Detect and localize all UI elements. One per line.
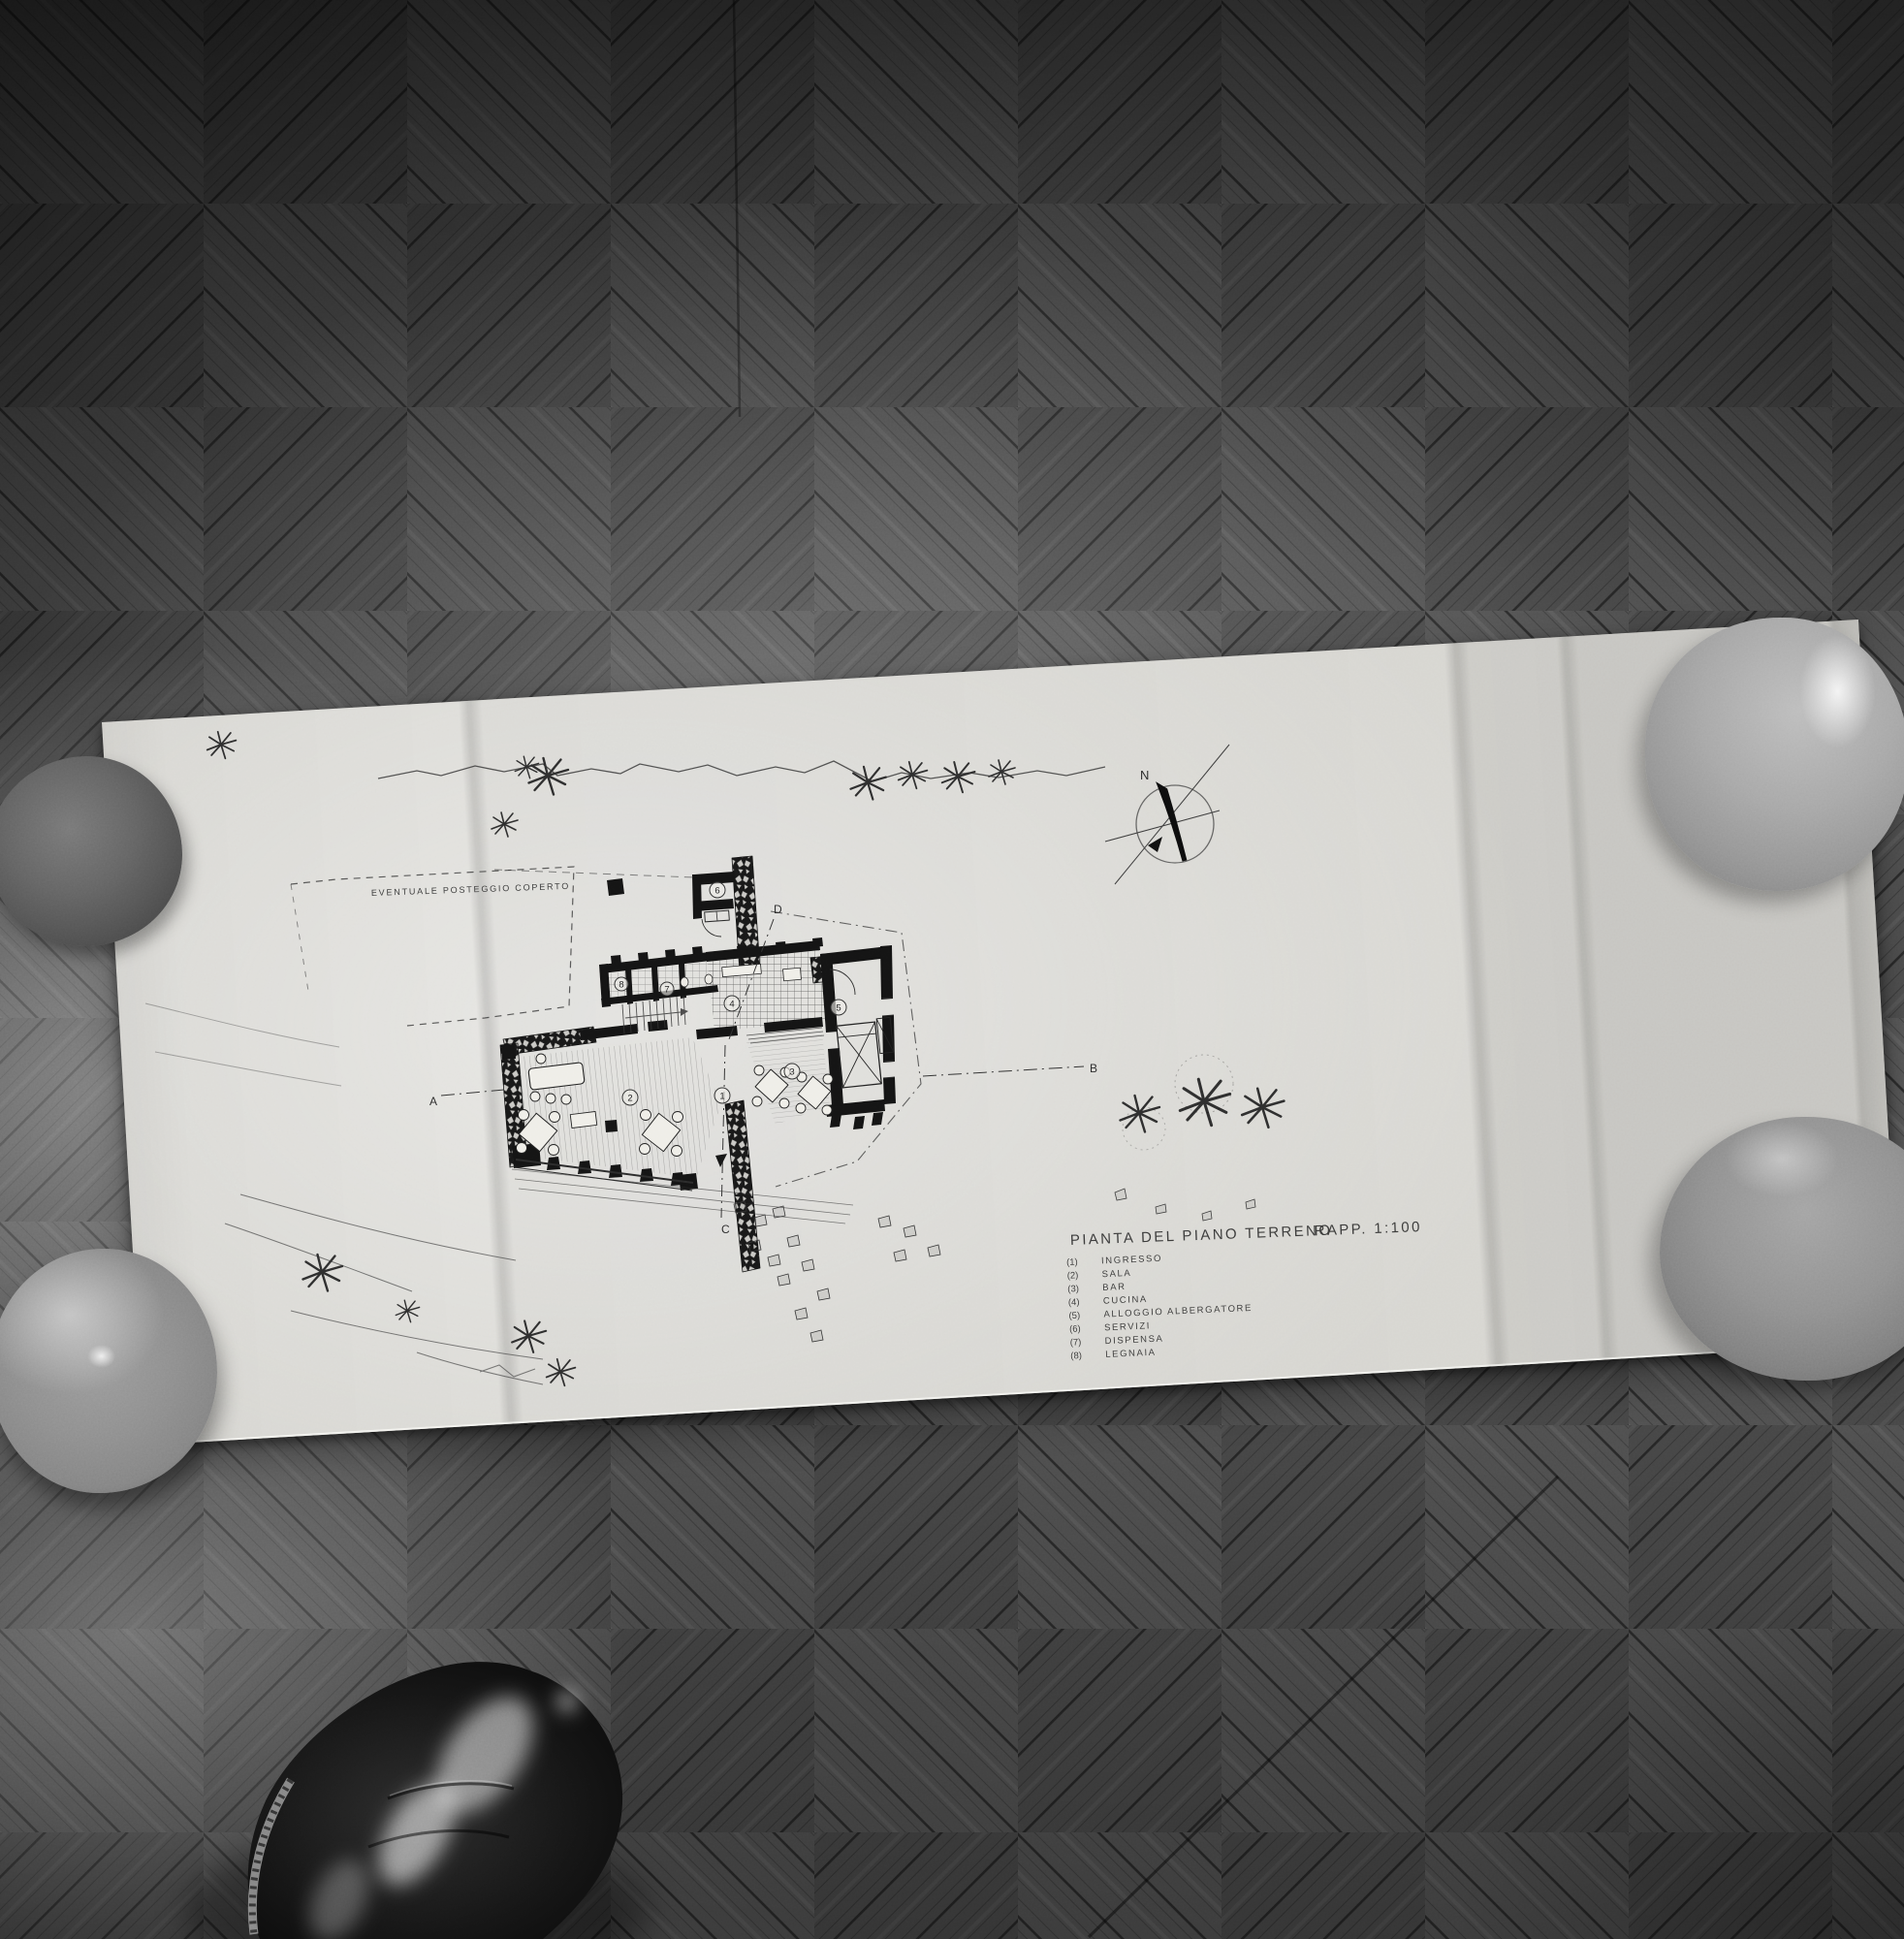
photograph-scene: N EVENTUALE POSTEGGIO COPERTO (0, 0, 1904, 1939)
drawing-sheet (102, 620, 1901, 1446)
